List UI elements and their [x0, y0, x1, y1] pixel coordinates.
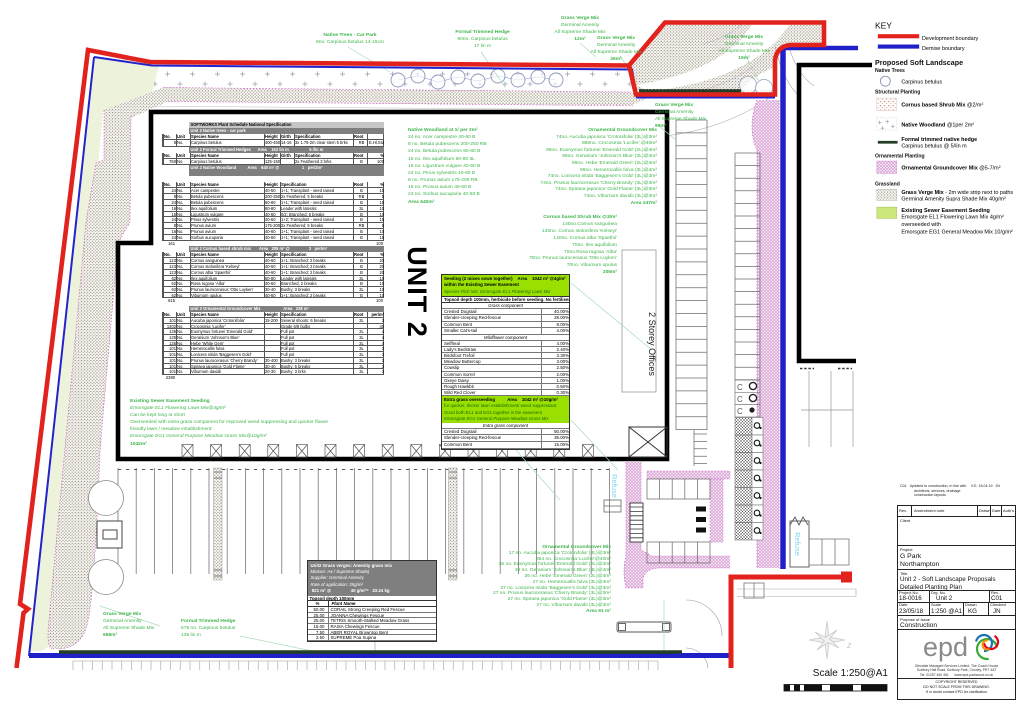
svg-text:Germinal Amenity Supra Shade M: Germinal Amenity Supra Shade Mix 40g/m² [901, 197, 1006, 203]
svg-text:Emorsgate EL1 Flowering Lawn M: Emorsgate EL1 Flowering Lawn Mix 4g/m² [901, 214, 1004, 220]
svg-text:Development boundary: Development boundary [922, 36, 979, 42]
svg-text:Demise boundary: Demise boundary [922, 46, 965, 52]
svg-text:Existing Sewer Easement Seedin: Existing Sewer Easement Seeding [901, 208, 990, 214]
svg-text:Carpinus betulus: Carpinus betulus [901, 80, 942, 86]
svg-text:Formal trimmed native hedge: Formal trimmed native hedge [901, 137, 977, 143]
svg-text:z: z [846, 640, 852, 650]
svg-text:Emorsgate EG1 General Meadow M: Emorsgate EG1 General Meadow Mix 10/g/m² [901, 229, 1013, 235]
svg-text:Grass Verge Mix - 2m wide stri: Grass Verge Mix - 2m wide strip next to … [901, 190, 1013, 196]
svg-text:Carpinus betulus @ 5/lin m: Carpinus betulus @ 5/lin m [901, 143, 967, 149]
svg-text:C: C [737, 407, 743, 416]
svg-text:overseeded with: overseeded with [901, 222, 941, 228]
svg-text:Ornamental Groundcover Mix @5-: Ornamental Groundcover Mix @5-7/m² [901, 166, 1000, 172]
svg-text:C: C [737, 383, 743, 392]
svg-text:Native Woodland @1per 2m²: Native Woodland @1per 2m² [901, 122, 974, 128]
svg-text:C: C [737, 395, 743, 404]
svg-text:Cornus based Shrub Mix @2/m²: Cornus based Shrub Mix @2/m² [901, 103, 983, 109]
